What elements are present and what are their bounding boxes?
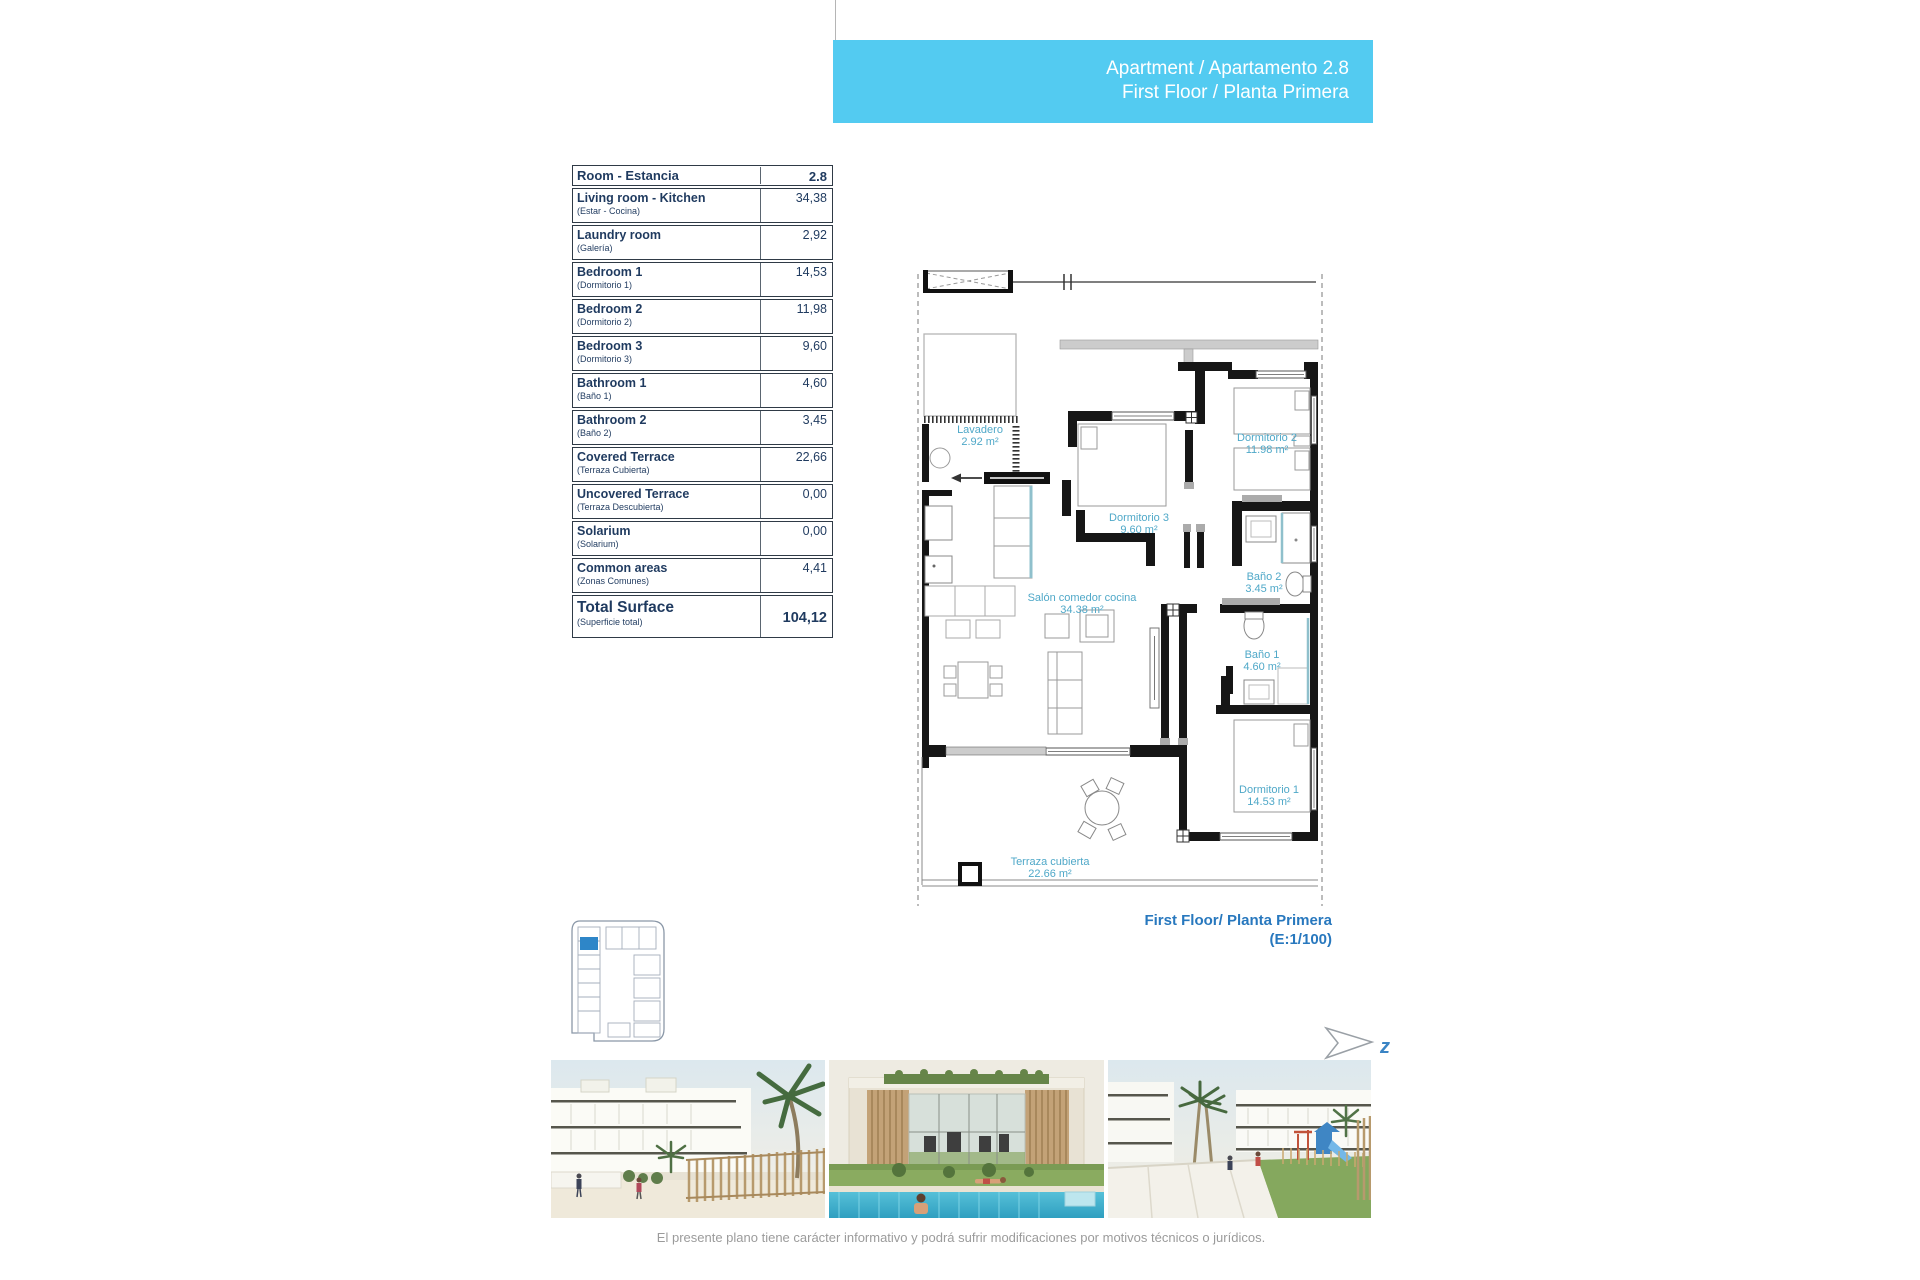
room-area-dormitorio2: 11.98 m² xyxy=(1246,444,1289,456)
table-row: Laundry room (Galería) 2,92 xyxy=(572,225,833,260)
room-sublabel: (Solarium) xyxy=(577,539,756,550)
room-label: Uncovered Terrace xyxy=(577,487,756,502)
room-label: Bedroom 2 xyxy=(577,302,756,317)
room-area-value: 4,41 xyxy=(760,559,832,592)
room-area-bano2: 3.45 m² xyxy=(1245,583,1283,595)
room-sublabel: (Dormitorio 1) xyxy=(577,280,756,291)
room-label: Laundry room xyxy=(577,228,756,243)
room-area-dormitorio1: 14.53 m² xyxy=(1247,796,1291,808)
room-sublabel: (Baño 2) xyxy=(577,428,756,439)
floor-title: First Floor / Planta Primera xyxy=(833,81,1349,105)
room-sublabel: (Estar - Cocina) xyxy=(577,206,756,217)
entrance-island xyxy=(951,472,1050,484)
table-header-row: Room - Estancia 2.8 xyxy=(572,165,833,186)
room-label-dormitorio2: Dormitorio 2 xyxy=(1237,432,1297,444)
north-label: z xyxy=(1379,1036,1390,1058)
room-area-bano1: 4.60 m² xyxy=(1243,661,1281,673)
room-label: Bedroom 1 xyxy=(577,265,756,280)
room-area-value: 4,60 xyxy=(760,374,832,407)
area-table: Room - Estancia 2.8 Living room - Kitche… xyxy=(572,165,833,640)
plan-caption: First Floor/ Planta Primera (E:1/100) xyxy=(1032,911,1332,949)
total-label: Total Surface xyxy=(577,598,756,617)
plan-caption-line2: (E:1/100) xyxy=(1032,930,1332,949)
table-row: Bathroom 1 (Baño 1) 4,60 xyxy=(572,373,833,408)
room-area-value: 3,45 xyxy=(760,411,832,444)
room-area-value: 14,53 xyxy=(760,263,832,296)
table-row: Covered Terrace (Terraza Cubierta) 22,66 xyxy=(572,447,833,482)
table-row: Common areas (Zonas Comunes) 4,41 xyxy=(572,558,833,593)
header-rule xyxy=(835,0,836,40)
room-area-salon: 34.38 m² xyxy=(1060,604,1104,616)
table-total-row: Total Surface (Superficie total) 104,12 xyxy=(572,595,833,638)
room-label-terraza: Terraza cubierta xyxy=(1011,856,1091,868)
table-header-label: Room - Estancia xyxy=(573,168,760,183)
disclaimer-text: El presente plano tiene carácter informa… xyxy=(551,1230,1371,1245)
room-area-terraza: 22.66 m² xyxy=(1028,868,1072,880)
room-area-value: 22,66 xyxy=(760,448,832,481)
room-area-lavadero: 2.92 m² xyxy=(961,436,999,448)
stair-core xyxy=(923,270,1013,293)
room-area-value: 2,92 xyxy=(760,226,832,259)
room-label: Common areas xyxy=(577,561,756,576)
room-label-dormitorio1: Dormitorio 1 xyxy=(1239,784,1299,796)
floor-plan-drawing: Lavadero 2.92 m² Dormitorio 3 9.60 m² Do… xyxy=(910,268,1330,913)
apartment-title: Apartment / Apartamento 2.8 xyxy=(833,57,1349,81)
table-row: Bathroom 2 (Baño 2) 3,45 xyxy=(572,410,833,445)
brochure-page: Apartment / Apartamento 2.8 First Floor … xyxy=(0,0,1920,1280)
table-row: Uncovered Terrace (Terraza Descubierta) … xyxy=(572,484,833,519)
key-plan-locator xyxy=(558,915,670,1047)
room-sublabel: (Zonas Comunes) xyxy=(577,576,756,587)
room-area-value: 11,98 xyxy=(760,300,832,333)
room-label: Bathroom 1 xyxy=(577,376,756,391)
table-row: Bedroom 1 (Dormitorio 1) 14,53 xyxy=(572,262,833,297)
exterior-render-photo xyxy=(551,1060,825,1218)
apartment-header: Apartment / Apartamento 2.8 First Floor … xyxy=(833,40,1373,123)
room-sublabel: (Galería) xyxy=(577,243,756,254)
table-row: Bedroom 2 (Dormitorio 2) 11,98 xyxy=(572,299,833,334)
highlighted-unit xyxy=(580,937,598,950)
plan-caption-line1: First Floor/ Planta Primera xyxy=(1032,911,1332,930)
north-arrow-icon xyxy=(1326,1028,1372,1058)
table-row: Living room - Kitchen (Estar - Cocina) 3… xyxy=(572,188,833,223)
room-sublabel: (Terraza Descubierta) xyxy=(577,502,756,513)
room-label-bano1: Baño 1 xyxy=(1245,649,1280,661)
room-area-value: 9,60 xyxy=(760,337,832,370)
room-area-value: 0,00 xyxy=(760,485,832,518)
room-label-lavadero: Lavadero xyxy=(957,424,1003,436)
table-row: Bedroom 3 (Dormitorio 3) 9,60 xyxy=(572,336,833,371)
total-value: 104,12 xyxy=(760,596,832,637)
table-row: Solarium (Solarium) 0,00 xyxy=(572,521,833,556)
room-area-value: 0,00 xyxy=(760,522,832,555)
room-label: Bathroom 2 xyxy=(577,413,756,428)
room-label: Solarium xyxy=(577,524,756,539)
playground-render-photo xyxy=(1108,1060,1371,1218)
room-sublabel: (Dormitorio 2) xyxy=(577,317,756,328)
pool-gym-render-photo xyxy=(829,1060,1104,1218)
room-area-value: 34,38 xyxy=(760,189,832,222)
room-label-bano2: Baño 2 xyxy=(1247,571,1282,583)
total-sublabel: (Superficie total) xyxy=(577,617,756,628)
room-sublabel: (Dormitorio 3) xyxy=(577,354,756,365)
room-area-dormitorio3: 9.60 m² xyxy=(1120,524,1158,536)
room-label-salon: Salón comedor cocina xyxy=(1028,592,1138,604)
room-label-dormitorio3: Dormitorio 3 xyxy=(1109,512,1169,524)
room-label: Covered Terrace xyxy=(577,450,756,465)
room-sublabel: (Terraza Cubierta) xyxy=(577,465,756,476)
room-label: Living room - Kitchen xyxy=(577,191,756,206)
room-label: Bedroom 3 xyxy=(577,339,756,354)
room-sublabel: (Baño 1) xyxy=(577,391,756,402)
table-header-value: 2.8 xyxy=(760,167,832,184)
